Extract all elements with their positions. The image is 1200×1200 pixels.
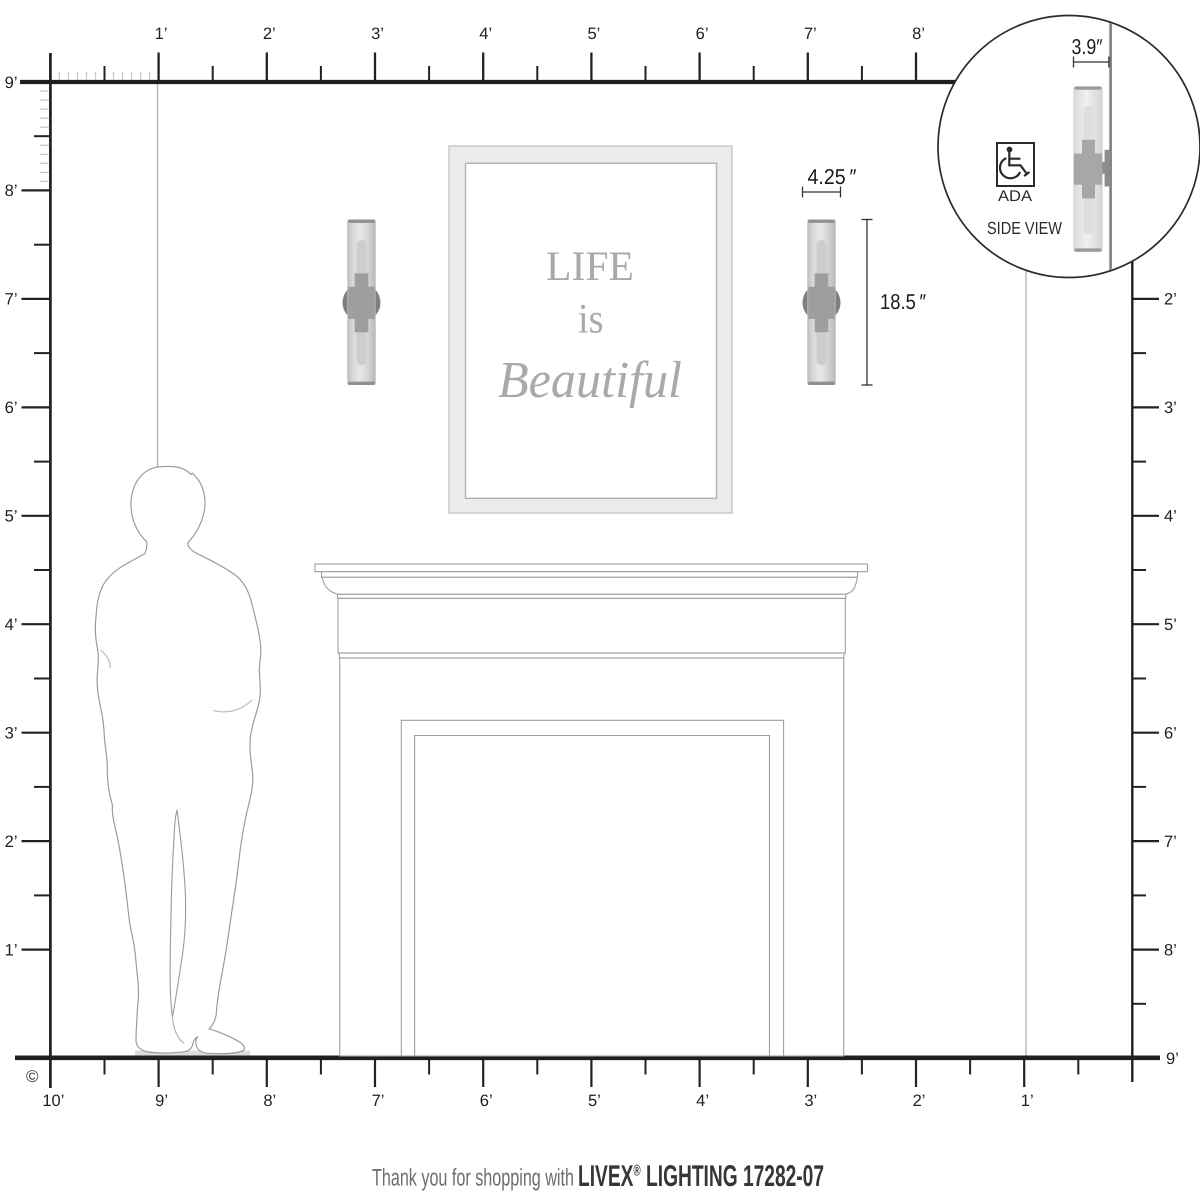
svg-text:1’: 1’ [1021, 1092, 1034, 1110]
svg-text:1’: 1’ [155, 25, 168, 43]
svg-text:Thank you for shopping with: Thank you for shopping with [372, 1165, 574, 1192]
svg-text:4’: 4’ [1164, 508, 1177, 526]
svg-text:SIDE VIEW: SIDE VIEW [987, 218, 1062, 238]
svg-text:3’: 3’ [1164, 399, 1177, 417]
svg-text:Beautiful: Beautiful [498, 352, 682, 409]
svg-text:5’: 5’ [587, 25, 600, 43]
svg-text:4’: 4’ [696, 1092, 709, 1110]
svg-text:LIFE: LIFE [546, 244, 634, 290]
svg-text:4’: 4’ [479, 25, 492, 43]
svg-text:6’: 6’ [1164, 725, 1177, 743]
svg-text:6’: 6’ [5, 399, 18, 417]
svg-text:8’: 8’ [263, 1092, 276, 1110]
svg-text:3’: 3’ [371, 25, 384, 43]
svg-text:18.5 ″: 18.5 ″ [880, 290, 926, 314]
svg-text:5’: 5’ [588, 1092, 601, 1110]
svg-text:6’: 6’ [696, 25, 709, 43]
svg-text:1’: 1’ [5, 941, 18, 959]
svg-text:5’: 5’ [1164, 616, 1177, 634]
svg-text:3’: 3’ [5, 725, 18, 743]
svg-text:2’: 2’ [913, 1092, 926, 1110]
svg-text:4.25 ″: 4.25 ″ [808, 165, 857, 189]
svg-text:9’: 9’ [155, 1092, 168, 1110]
svg-text:6’: 6’ [480, 1092, 493, 1110]
svg-text:7’: 7’ [804, 25, 817, 43]
svg-text:8’: 8’ [912, 25, 925, 43]
svg-text:9’: 9’ [5, 74, 18, 92]
svg-text:7’: 7’ [372, 1092, 385, 1110]
svg-text:2’: 2’ [263, 25, 276, 43]
svg-text:7’: 7’ [1164, 833, 1177, 851]
svg-text:10’: 10’ [42, 1092, 64, 1110]
svg-text:4’: 4’ [5, 616, 18, 634]
svg-text:3.9″: 3.9″ [1072, 35, 1103, 59]
svg-text:2’: 2’ [5, 833, 18, 851]
svg-text:5’: 5’ [5, 508, 18, 526]
svg-text:is: is [578, 297, 604, 343]
svg-text:7’: 7’ [5, 291, 18, 309]
svg-text:8’: 8’ [5, 182, 18, 200]
svg-text:2’: 2’ [1164, 291, 1177, 309]
svg-text:3’: 3’ [804, 1092, 817, 1110]
svg-text:LIVEX® LIGHTING 17282-07: LIVEX® LIGHTING 17282-07 [578, 1160, 824, 1193]
svg-text:©: © [26, 1067, 39, 1086]
svg-text:8’: 8’ [1164, 941, 1177, 959]
svg-text:ADA: ADA [998, 188, 1033, 205]
svg-text:9’: 9’ [1166, 1050, 1179, 1068]
